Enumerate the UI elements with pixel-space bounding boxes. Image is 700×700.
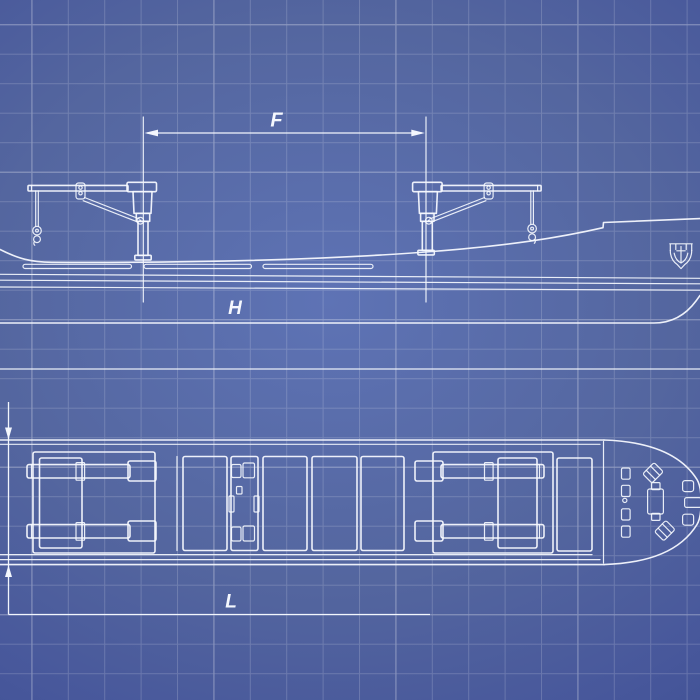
dimension-label-h: H (228, 298, 243, 319)
dimension-label-f: F (270, 110, 283, 132)
stay-pivot-pin (139, 220, 141, 222)
ship-blueprint-drawing: F H (0, 0, 700, 700)
blueprint-canvas: F H (0, 0, 700, 700)
dimension-label-l: L (225, 592, 237, 613)
grid-major (0, 0, 700, 700)
stay-pivot-pin (428, 220, 430, 222)
